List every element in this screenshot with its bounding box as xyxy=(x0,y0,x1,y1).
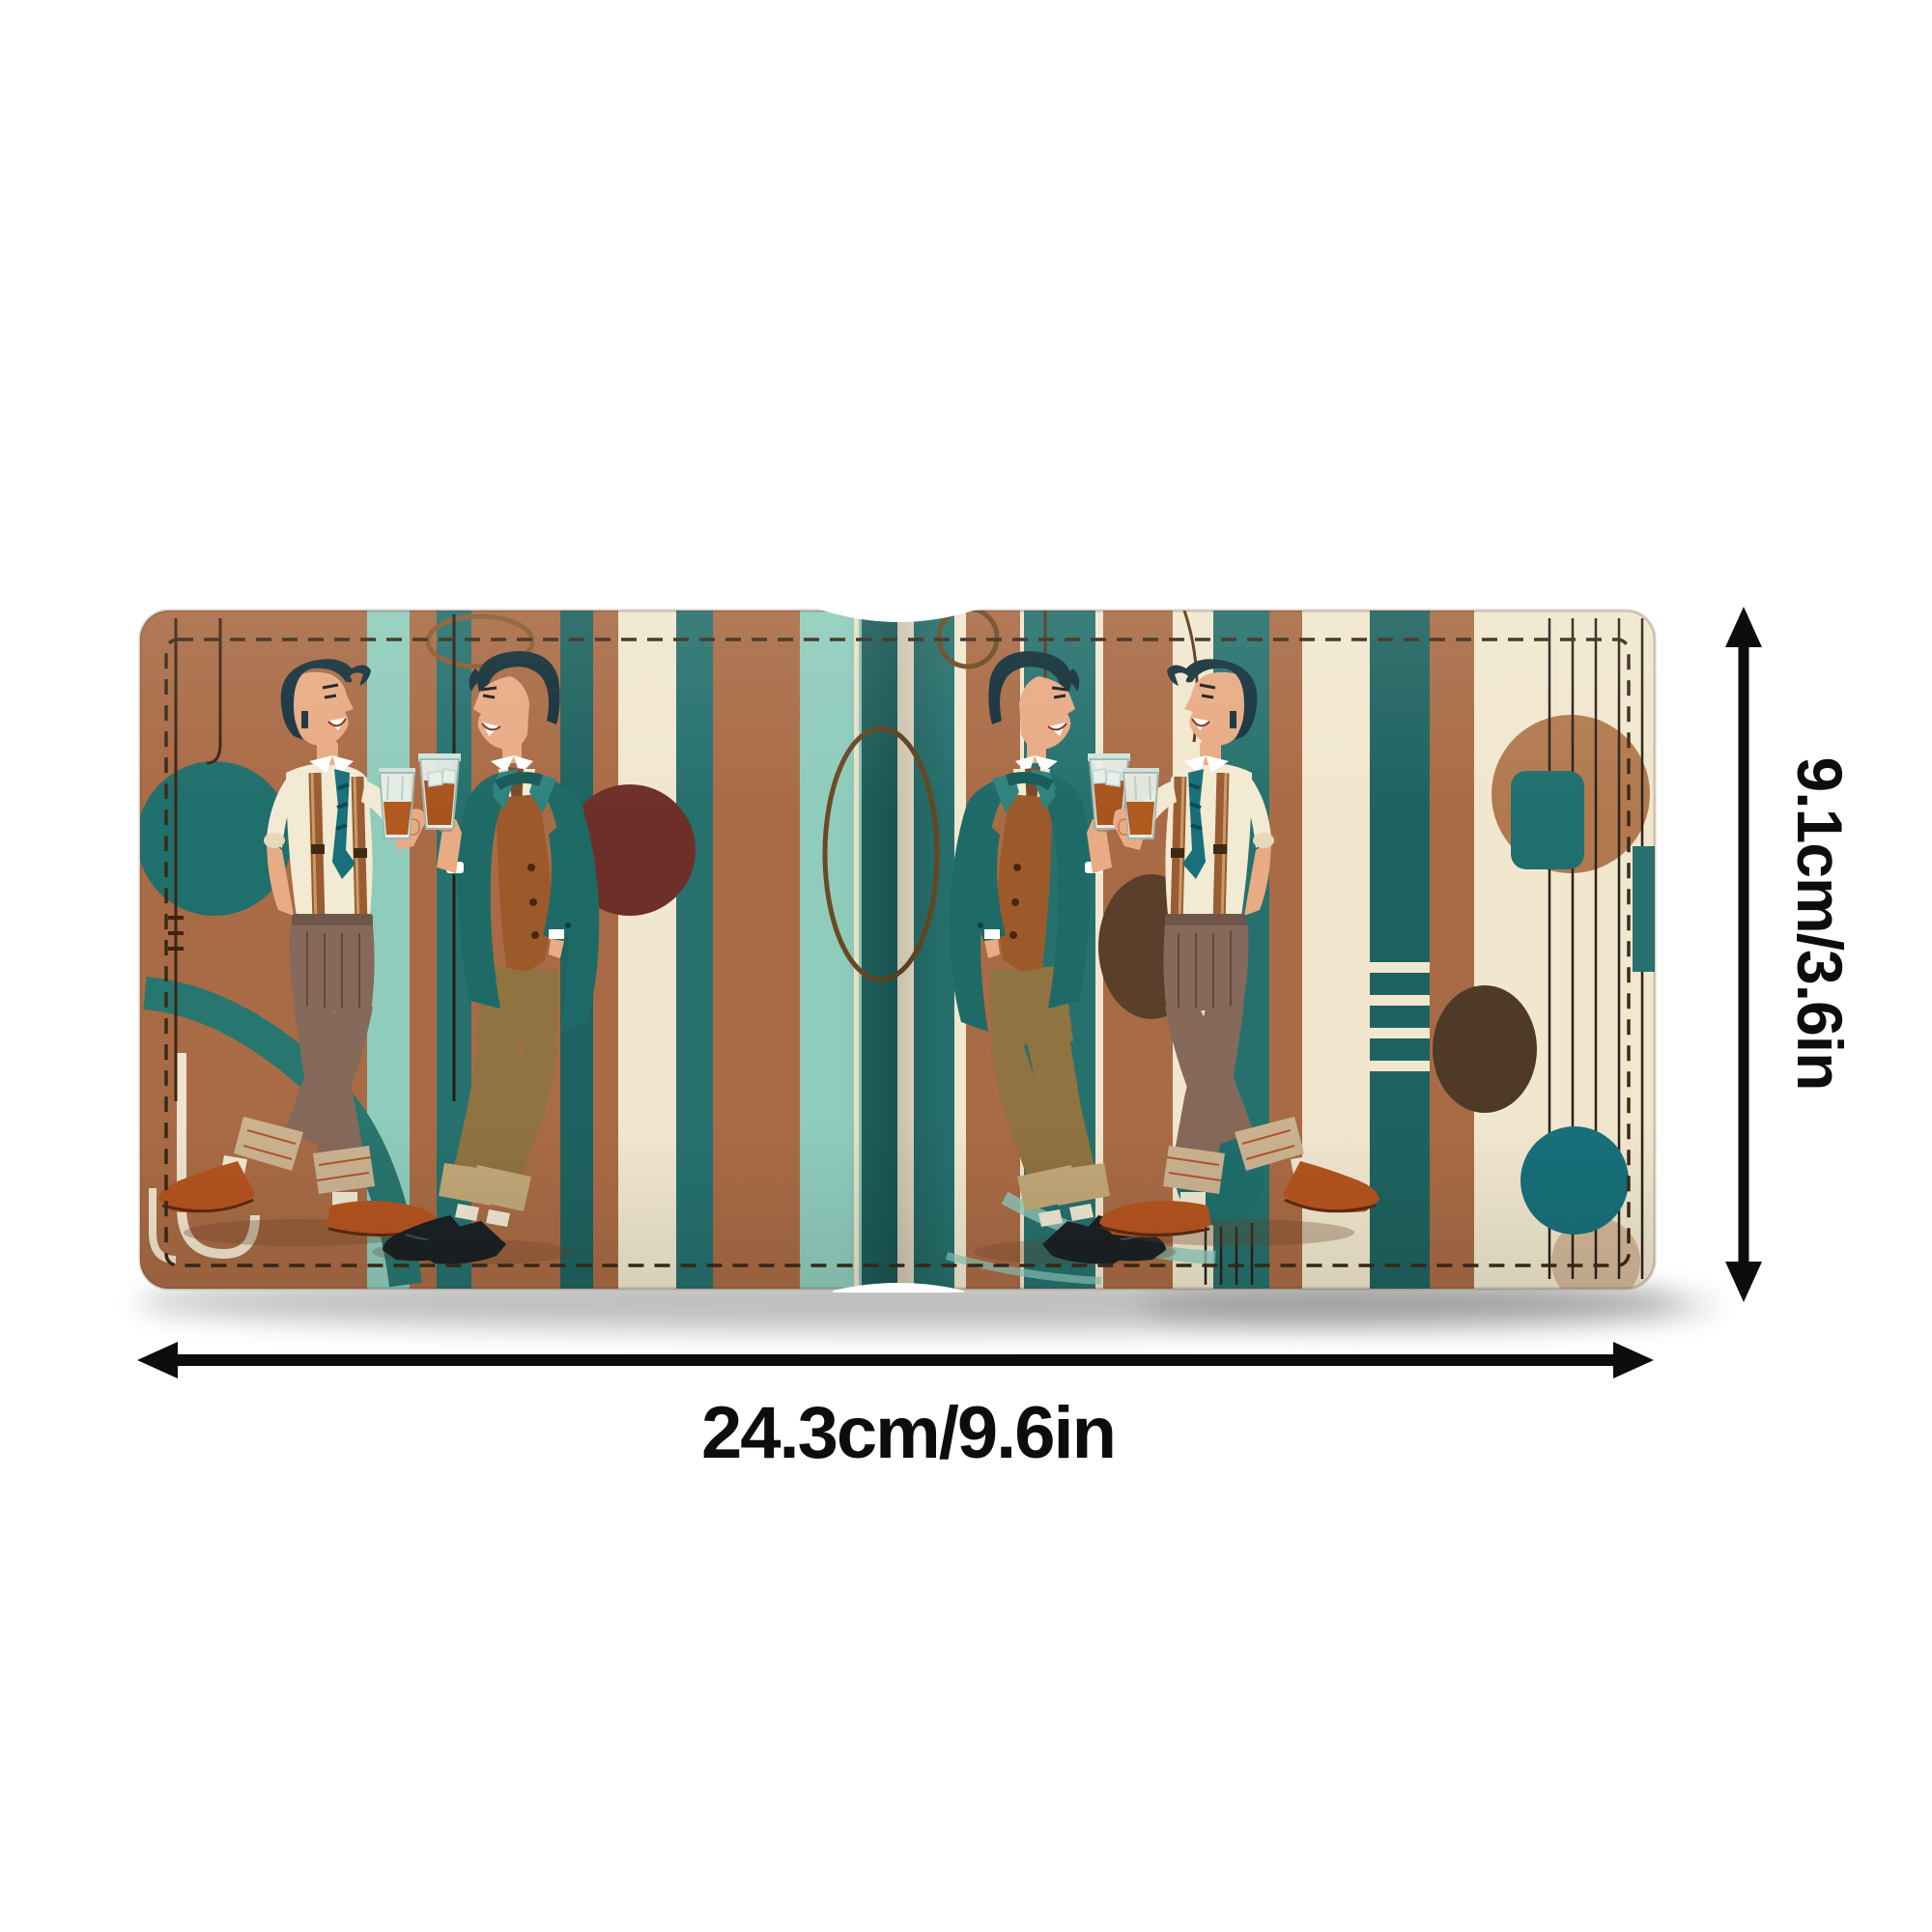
wallet-dimension-illustration xyxy=(0,0,1932,1932)
product-dimension-image: 24.3cm/9.6in 9.1cm/3.6in xyxy=(0,0,1932,1932)
width-arrow-icon xyxy=(137,1342,1654,1378)
width-dimension-label: 24.3cm/9.6in xyxy=(396,1391,1420,1475)
height-dimension-label: 9.1cm/3.6in xyxy=(1783,757,1857,1091)
height-arrow-icon xyxy=(1725,607,1762,1302)
wallet-open-flat xyxy=(137,605,1655,1306)
